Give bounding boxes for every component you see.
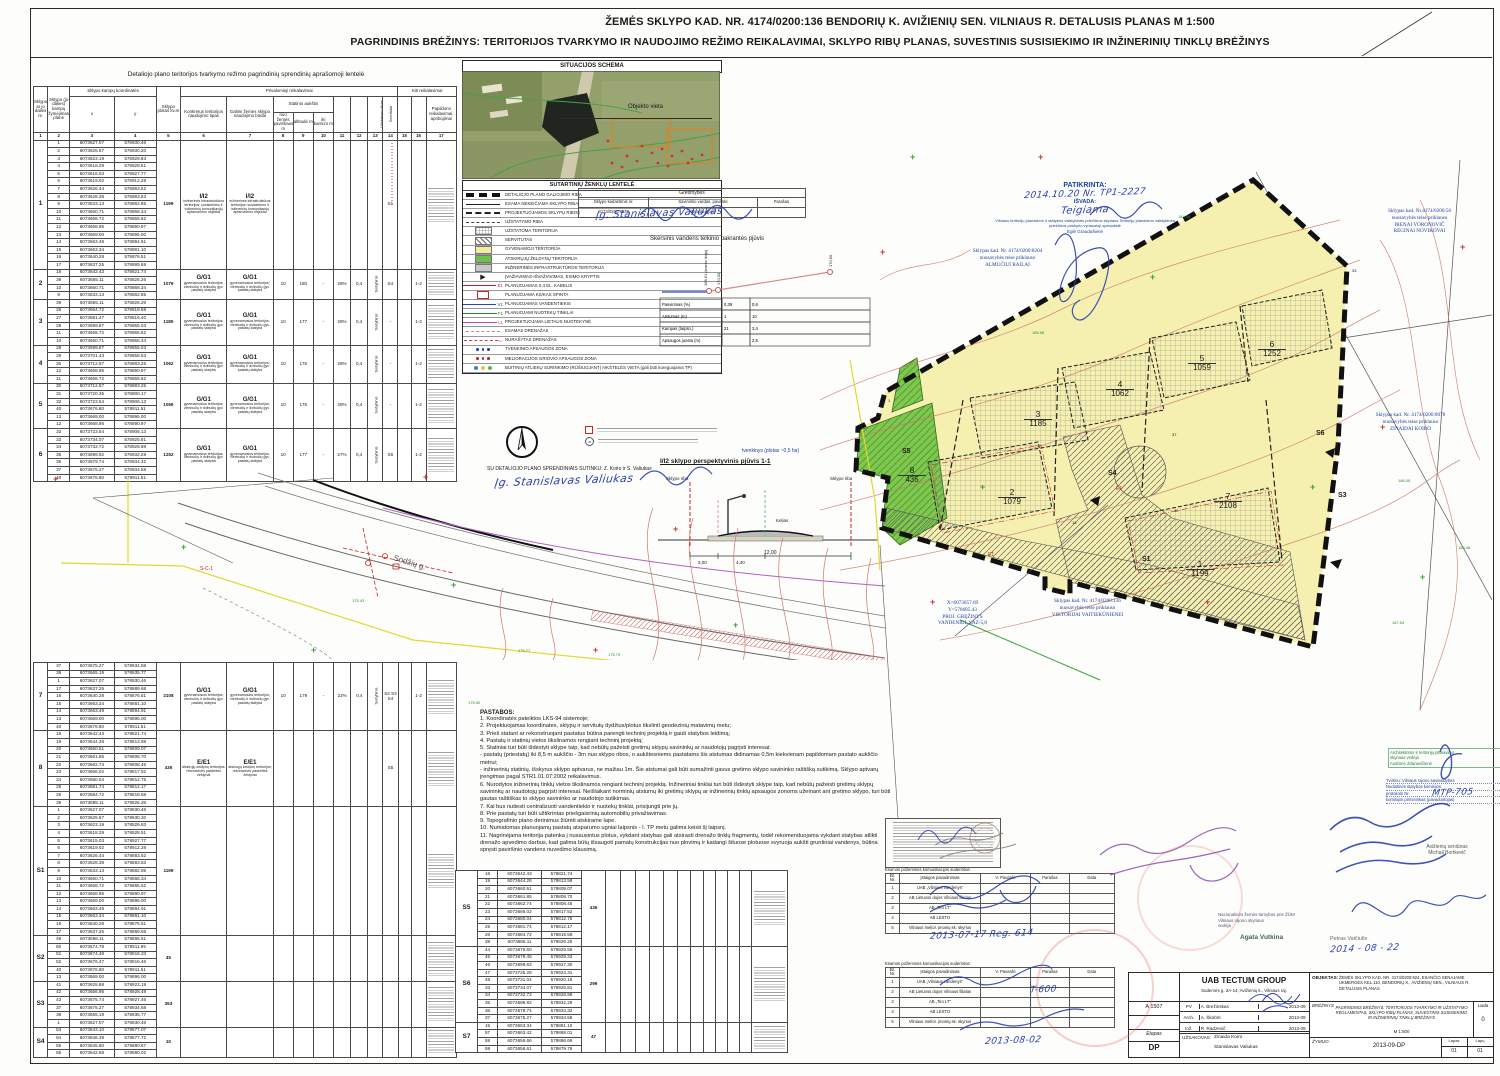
table-row: 3396073665.11578826.261185G/G1gyvenamosi… [34, 299, 457, 307]
table-row: 7376073675.27578934.582108G/G1gyvenamosi… [34, 663, 457, 671]
legend-item-label: PLANUOJAMI NUOTEKŲ TINKLAI [503, 311, 573, 315]
owner-label: Sklypas kad. Nr. 4174/0200:8078nuosavybė… [1348, 412, 1473, 432]
legend-item-label: ATSKIRŲJŲ ŽELDYNŲ TERITORIJA [503, 257, 577, 261]
table-row: S5186073642.43578821.74435 [456, 871, 788, 879]
pastaba-item: 8. Prie pastatų turi būti užtikrintas pr… [480, 811, 892, 818]
nzt-label: Nacionalinės žemės tarnybos prie ŽŪMViln… [1218, 912, 1348, 929]
main-table-title: Detaliojo plano teritorijos tvarkymo rež… [40, 71, 452, 78]
pastabos-box: PASTABOS: 1. Koordinatės pateiktos LKS-9… [480, 710, 892, 855]
patikrinta-block: PATIKRINTA: 2014.10.20 Nr. TP1-2227 IŠVA… [990, 182, 1180, 234]
map-annotation: 185.58 [1032, 330, 1044, 335]
uzriba-symbol-icon [463, 218, 503, 226]
uzter-symbol-icon [463, 227, 503, 235]
seniunas-label: Avižienių seniūnasMichail Bortkevič [1392, 844, 1500, 856]
table-row: S7156073663.34578881.1047 [456, 1022, 788, 1030]
main-table-top: Sklypo ar jo dalies nr.Sklypo (jo dalies… [33, 86, 457, 482]
company-address: Sudervės g. 3A-14, Avižienių k., Vilniau… [1180, 988, 1308, 993]
riba-symbol-icon [463, 191, 503, 199]
komunikacijos-box-2: Esamos požeminės komunikacijos suderinto… [885, 962, 1117, 1028]
arrow-symbol-icon: ▶ [463, 273, 503, 281]
map-annotation: 175.77 [518, 648, 530, 653]
svg-text:+: + [1420, 572, 1425, 582]
role-row: Arch.A. Škobrit2013-09 [1179, 1012, 1309, 1023]
objekto-vieta-label: Objekto vieta [628, 104, 663, 110]
zeld-symbol-icon [463, 255, 503, 263]
owner-label: Sklypas kad. Nr. 4174/0200:136nuosavybės… [1010, 598, 1165, 618]
inspector-name: Eglė Graudušienė [990, 229, 1180, 234]
parcel-label-4: 41062 [1106, 380, 1134, 398]
pastaba-item: 11. Nagrinėjama teritorija patenka į nus… [480, 833, 892, 855]
map-annotation: 40 [1174, 508, 1178, 513]
svg-text:+: + [880, 247, 885, 257]
main-table-bottom: 7376073675.27578934.582108G/G1gyvenamosi… [33, 662, 457, 1058]
mastelis: M 1:500 [1334, 1029, 1469, 1034]
pastaba-item: 9. Topografinio plano derinimus žiūrėti … [480, 818, 892, 825]
komunikacijos-hand-2: T-600 [1029, 985, 1057, 996]
legend-item-label: ESAMA NEKEIČIAMA SKLYPO RIBA [503, 202, 578, 206]
legend-item-label: SERVITUTAS [503, 238, 532, 242]
owner-label: Sklypas kad. Nr. 4174/0200:8204nuosavybė… [935, 248, 1080, 268]
table-row: S2496073666.11578895.5145 [34, 936, 457, 944]
serv-symbol-icon [463, 236, 503, 244]
uzsakovas-label: UŽSAKOVAS: [1182, 1035, 1211, 1040]
proj-symbol-icon [463, 209, 503, 217]
legend-item: BUITINIŲ ATLIEKŲ SURINKIMO (RŪŠIUOJANT) … [463, 364, 721, 373]
map-annotation: S-C-1 [200, 566, 213, 572]
map-annotation: 187.54 [1392, 620, 1404, 625]
zymuo-label: ŽYMUO [1312, 1039, 1329, 1044]
table-row: 2186073642.43578821.741079G/G1gyvenamosi… [34, 269, 457, 277]
brezinys-text: PAGRINDINIS BRĖŽINYS: TERITORIJOS TVARKY… [1334, 1005, 1469, 1020]
svg-text:3,4: 3,4 [752, 326, 758, 331]
svg-text:Kampas (laipsn.): Kampas (laipsn.) [662, 326, 694, 331]
map-annotation: tvenkinys (plotas ~0,5 ha) [742, 448, 799, 454]
svg-text:+: + [593, 645, 598, 655]
table-row: S3416073628.88578923.19353 [34, 981, 457, 989]
legend-item-label: PROJEKTUOJAMOS SKLYPŲ RIBOS [503, 211, 580, 215]
pastaba-item: 4. Pastatų ir statinių vietos tikslinamo… [480, 738, 892, 745]
svg-text:0,6: 0,6 [752, 302, 758, 307]
lapu-label: Lapų [1467, 1038, 1493, 1043]
map-annotation: 175.43 [352, 598, 364, 603]
svg-text:+: + [311, 645, 316, 655]
roles-rows: PVA. Brežinskas2013-09Arch.A. Škobrit201… [1179, 1001, 1309, 1034]
svg-text:168,61 (kranto linija): 168,61 (kranto linija) [703, 249, 708, 286]
map-annotation: 184.48 [1178, 214, 1190, 219]
table-row: 5306073712.67578883.251059G/G1gyvenamosi… [34, 383, 457, 391]
legend-item: UŽSTATYMO RIBA [463, 218, 721, 227]
legend-item-label: TVENKINIO APSAUGOS ZONA [503, 347, 568, 351]
approval-stamp-hand: MTP-705 [1431, 787, 1474, 799]
parcel-label-8: 8435 [898, 466, 926, 484]
table-row: 6326073723.54578906.131252G/G1gyvenamosi… [34, 429, 457, 437]
persp-title: I/I2 sklypo perspektyvinis pjūvis 1-1 [660, 458, 771, 465]
sheet-title-line2: PAGRINDINIS BRĖŽINYS: TERITORIJOS TVARKY… [300, 36, 1320, 48]
svg-text:+: + [53, 474, 58, 484]
esama-symbol-icon [463, 200, 503, 208]
map-annotation: 186.05 [1398, 478, 1410, 483]
f1-symbol-icon: F1 [463, 309, 503, 317]
svg-text:+: + [733, 620, 738, 630]
parcel-label-7: 72108 [1214, 492, 1242, 510]
svg-text:+: + [1150, 272, 1155, 282]
svg-text:+: + [1310, 482, 1315, 492]
map-annotation: 188.48 [1458, 545, 1470, 550]
servitude-label-S6: S6 [1316, 430, 1325, 437]
etapas-label: Etapas [1129, 1031, 1179, 1037]
legend-item-label: GYVENAMOJI TERITORIJA [503, 247, 560, 251]
legend-item-label: INŽINERINĖS INFRASTRUKTŪROS TERITORIJA [503, 266, 604, 270]
pastaba-item: - inžinerinių statinių, išskyrus sklypo … [480, 767, 892, 782]
svg-text:Apsaugos juosta (m): Apsaugos juosta (m) [662, 338, 701, 343]
dren-symbol-icon [463, 327, 503, 335]
role-row: PVA. Brežinskas2013-09 [1179, 1001, 1309, 1012]
nzt-name: Agata Vutkina [1240, 934, 1283, 941]
pastaba-item: 2. Projektuojamas koordinates, sklypų ir… [480, 723, 892, 730]
svg-text:+: + [181, 542, 186, 552]
komunikacijos-table-1: Eil. Nr.Įstaigos pavadinimasV. PavardėPa… [885, 873, 1115, 934]
lapas-label: Lapas [1441, 1038, 1467, 1043]
legend-item-label: UŽSTATOMA TERITORIJA [503, 229, 558, 233]
pastabos-items: 1. Koordinatės pateiktos LKS-94 sistemoj… [480, 716, 892, 855]
pastaba-item: - pastatų (priestatų) iki 8,5 m aukščio … [480, 752, 892, 767]
svg-text:+: + [451, 580, 456, 590]
svg-text:10: 10 [752, 314, 757, 319]
registration-stamp-box [885, 818, 1001, 868]
pastaba-item: 7. Kai bus nutiesti centralizuoti vanden… [480, 804, 892, 811]
svg-text:1: 1 [724, 314, 727, 319]
svg-text:+: + [1038, 152, 1043, 162]
table-row: S116073627.07578930.461199 [34, 807, 457, 815]
svg-text:+: + [673, 524, 678, 534]
objektas-label: OBJEKTAS: [1312, 975, 1338, 980]
map-annotation: 37 [1172, 432, 1176, 437]
parcel-label-3: 31185 [1024, 410, 1052, 428]
parcel-label-2: 21079 [998, 488, 1026, 506]
lapas-value: 01 [1441, 1048, 1467, 1054]
table-row: 116073627.07578930.461199I/I2inžinerinės… [34, 140, 457, 148]
brezinys-label: BRĖŽINYS [1312, 1003, 1334, 1008]
title-block: A 1507 Etapas DP UAB TECTUM GROUP Suderv… [1128, 972, 1494, 1058]
map-annotation: E1 [1116, 486, 1122, 492]
svg-text:0,39: 0,39 [724, 302, 733, 307]
legend-item-label: BUITINIŲ ATLIEKŲ SURINKIMO (RŪŠIUOJANT) … [503, 366, 692, 370]
map-annotation: E1 [988, 552, 994, 558]
vaiciulis-name: Petras Vaičiulis [1330, 936, 1367, 942]
legend-item-label: ĮVAŽIAVIMAS-IŠVAŽIAVIMAS, EISMO KRYPTIS [503, 275, 600, 279]
svg-text:+: + [980, 482, 985, 492]
uzsakovas-2: Stanislavas Valiukas [1214, 1045, 1258, 1050]
svg-text:+: + [1460, 242, 1465, 252]
lapu-value: 01 [1467, 1048, 1493, 1054]
svg-text:+: + [423, 472, 428, 482]
role-row: Inž.R. Radzevič2013-09 [1179, 1023, 1309, 1034]
servitude-label-S3: S3 [1338, 492, 1347, 499]
situacija-satellite-image [462, 71, 720, 179]
pastaba-item: 6. Nurodytos inžinerinių tinklų vietos t… [480, 782, 892, 804]
objektas-text: ŽEMĖS SKLYPO KAD. NR. 4174/0200:624, ESA… [1339, 975, 1489, 991]
pastaba-item: 3. Prieš statant ar rekonstruojant pasta… [480, 731, 892, 738]
symbols-note: a [585, 426, 755, 446]
svg-text:21: 21 [724, 326, 729, 331]
project-code: A 1507 [1129, 1004, 1179, 1010]
north-arrow-icon [498, 418, 546, 466]
atl-symbol-icon [463, 364, 503, 372]
servitude-label-S5: S5 [902, 448, 911, 455]
v1-symbol-icon: V1 [463, 300, 503, 308]
company-name: UAB TECTUM GROUP [1180, 976, 1308, 985]
legend-item-label: MELIORACIJOS GRIOVIO APSAUGOS ZONA [503, 357, 597, 361]
legend-item: MELIORACIJOS GRIOVIO APSAUGOS ZONA [463, 355, 721, 364]
pastaba-item: 10. Numatomas planuojamų pastatų atsparu… [480, 825, 892, 832]
cross-section-title: Skersinis vandens telkinio pakrantės pjū… [650, 236, 764, 242]
svg-text:+: + [910, 152, 915, 162]
legend-item-label: ESAMAS DRENAŽAS [503, 329, 548, 333]
ks-symbol-icon [463, 291, 503, 299]
legend-item-label: DETALIOJO PLANO GALIOJIMO RIBA [503, 193, 582, 197]
owner-label: X=6073657.69Y=578685.43PROJ. GRĘŽINYSVAN… [920, 600, 1005, 627]
e1-symbol-icon: E1 [463, 282, 503, 290]
l1-symbol-icon: L1 [463, 318, 503, 326]
map-annotation: 1 [888, 398, 890, 403]
servitude-label-S1: S1 [1142, 556, 1151, 563]
road-topo-drawing: ++ ++ ++ ++ Sodžių g. [33, 468, 885, 660]
zymuo-value: 2013-09-DP [1339, 1043, 1439, 1049]
table-row: S6446073675.60578929.56299 [456, 946, 788, 954]
komunikacijos-table-2: Eil. Nr.Įstaigos pavadinimasV. PavardėPa… [885, 967, 1115, 1028]
melio-symbol-icon [463, 355, 503, 363]
legend-item-label: UŽSTATYMO RIBA [503, 220, 543, 224]
svg-text:170,00: 170,00 [716, 272, 721, 285]
parcel-label-6: 61252 [1258, 340, 1286, 358]
gretimybes-title: Gretimybės [578, 188, 806, 197]
legend-item-label: PROJEKTUOJAMA LIETAUS NUOTEKYNĖ [503, 320, 591, 324]
parcel-label-1: 11199 [1186, 560, 1214, 578]
gyv-symbol-icon [463, 246, 503, 254]
table-row: 8186073642.43578821.74435E/E1atskirųjų ž… [34, 731, 457, 739]
aux-table: S5186073642.43578821.74435196073644.2857… [455, 870, 788, 1053]
uzsakovas-1: Zinaida Koiro [1214, 1035, 1242, 1040]
komunikacijos-hand-3: 2013-08-02 [984, 1035, 1042, 1047]
laida-value: 0 [1473, 1017, 1493, 1023]
map-annotation: 175.50 [468, 700, 480, 705]
table-row: 4286073699.87578855.031062G/G1gyvenamosi… [34, 345, 457, 353]
map-annotation: 13 [1072, 520, 1076, 525]
table-row: S4536073643.10578877.0710 [34, 1027, 457, 1035]
komunikacijos-box-1: Esamos požeminės komunikacijos suderinto… [885, 868, 1117, 934]
legend-item-label: PLANUOJAMAS VANDENTIEKIS [503, 302, 571, 306]
map-annotation: 33 [1352, 268, 1356, 273]
owner-label: Sklypas kad. Nr.4174/0200:56nuosavybės t… [1352, 208, 1487, 235]
legend-item-label: PLANUOJAMAS 0,4 EL. KABELIS [503, 284, 572, 288]
drenx-symbol-icon: ×× [463, 337, 503, 345]
legend-item-label: PLANUOJAMA KS/KAS SPINTA [503, 293, 568, 297]
svg-text:Atstumas (m): Atstumas (m) [662, 314, 687, 319]
svg-text:Pasvirimas (%): Pasvirimas (%) [662, 302, 691, 307]
legend-item-label: NURAŠYTAS DRENAŽAS [503, 338, 557, 342]
sheet-title-line1: ŽEMĖS SKLYPO KAD. NR. 4174/0200:136 BEND… [430, 16, 1390, 28]
tvenk-symbol-icon [463, 346, 503, 354]
objekto-vieta-leader [560, 118, 712, 119]
architect-stamp: Architektūros ir teritorijų planavimosky… [1388, 748, 1500, 768]
parcel-label-5: 51059 [1188, 354, 1216, 372]
servitude-label-S4: S4 [1108, 470, 1117, 477]
infra-symbol-icon [463, 264, 503, 272]
pastaba-item: 5. Statiniai turi būti išdėstyti sklype … [480, 745, 892, 752]
etapas-value: DP [1129, 1043, 1179, 1052]
plan-sheet: ŽEMĖS SKLYPO KAD. NR. 4174/0200:136 BEND… [0, 0, 1500, 1076]
map-annotation: 175.79 [608, 652, 620, 657]
title-divider [30, 57, 1492, 58]
inspector-text: Vilniaus teritorijų planavimo ir statybo… [990, 219, 1180, 229]
svg-text:+: + [1205, 597, 1210, 607]
pastaba-item: 1. Koordinatės pateiktos LKS-94 sistemoj… [480, 716, 892, 723]
svg-text:2,5: 2,5 [752, 338, 758, 343]
laida-label: Laida [1473, 1003, 1493, 1008]
